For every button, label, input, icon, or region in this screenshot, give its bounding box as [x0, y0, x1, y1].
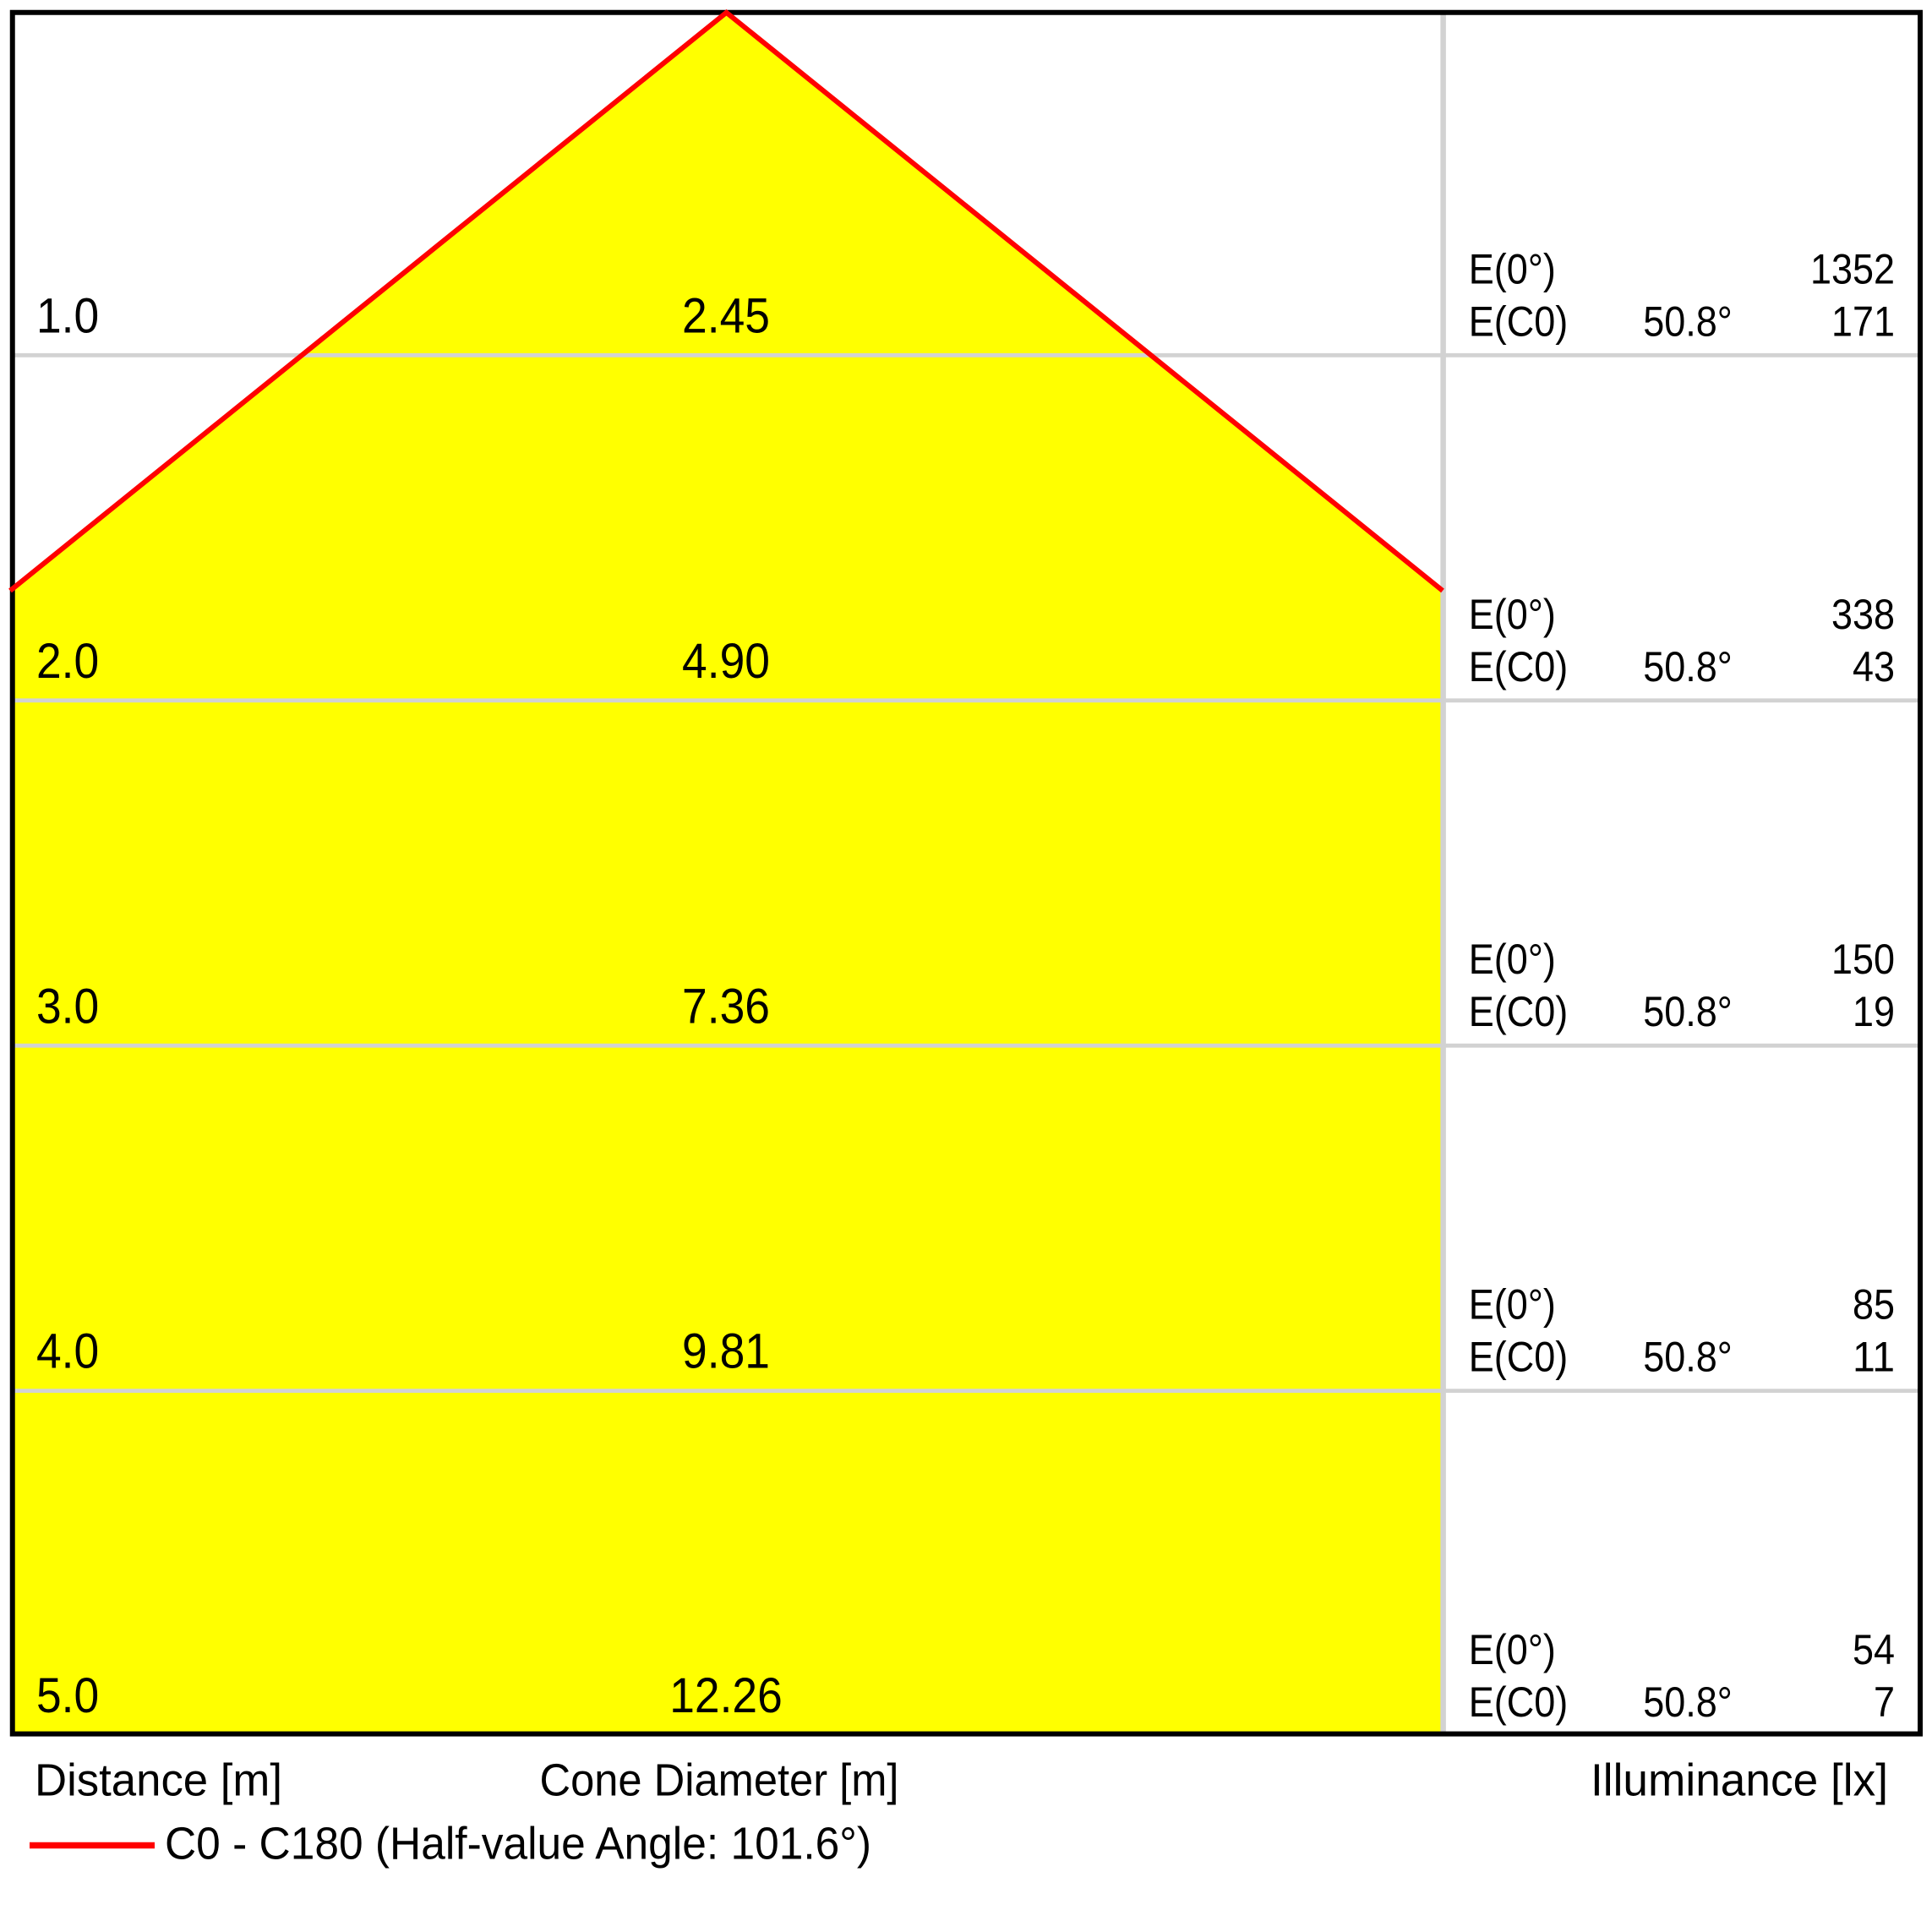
svg-text:19: 19 — [1853, 988, 1895, 1035]
svg-text:12.26: 12.26 — [669, 1668, 783, 1723]
svg-text:E(C0): E(C0) — [1469, 1334, 1569, 1381]
svg-text:50.8°: 50.8° — [1643, 988, 1733, 1035]
svg-text:E(C0): E(C0) — [1469, 1678, 1569, 1726]
svg-text:43: 43 — [1853, 643, 1895, 690]
svg-text:E(0°): E(0°) — [1469, 245, 1556, 292]
svg-text:150: 150 — [1831, 936, 1895, 983]
svg-text:54: 54 — [1853, 1626, 1895, 1673]
svg-text:50.8°: 50.8° — [1643, 643, 1733, 690]
svg-text:171: 171 — [1831, 297, 1895, 345]
svg-text:Cone Diameter [m]: Cone Diameter [m] — [540, 1755, 899, 1806]
svg-text:Distance [m]: Distance [m] — [35, 1755, 282, 1806]
svg-text:338: 338 — [1831, 591, 1895, 638]
svg-text:E(0°): E(0°) — [1469, 591, 1556, 638]
svg-text:7: 7 — [1874, 1678, 1895, 1726]
svg-text:3.0: 3.0 — [36, 979, 99, 1034]
svg-text:5.0: 5.0 — [36, 1668, 99, 1723]
svg-text:85: 85 — [1853, 1281, 1895, 1329]
svg-text:50.8°: 50.8° — [1643, 1334, 1733, 1381]
svg-text:E(C0): E(C0) — [1469, 297, 1569, 345]
svg-text:2.45: 2.45 — [682, 288, 770, 343]
svg-text:E(C0): E(C0) — [1469, 643, 1569, 690]
svg-text:1.0: 1.0 — [36, 288, 99, 343]
svg-text:C0 - C180 (Half-value Angle: 1: C0 - C180 (Half-value Angle: 101.6°) — [165, 1818, 871, 1869]
svg-text:4.0: 4.0 — [36, 1324, 99, 1379]
svg-text:11: 11 — [1853, 1334, 1895, 1381]
svg-text:50.8°: 50.8° — [1643, 1678, 1733, 1726]
svg-text:4.90: 4.90 — [682, 634, 770, 689]
svg-text:50.8°: 50.8° — [1643, 297, 1733, 345]
svg-text:E(0°): E(0°) — [1469, 1626, 1556, 1673]
svg-text:1352: 1352 — [1810, 245, 1895, 292]
svg-text:9.81: 9.81 — [682, 1324, 770, 1379]
svg-text:E(C0): E(C0) — [1469, 988, 1569, 1035]
svg-text:E(0°): E(0°) — [1469, 936, 1556, 983]
svg-text:2.0: 2.0 — [36, 634, 99, 689]
svg-text:7.36: 7.36 — [682, 979, 770, 1034]
svg-text:E(0°): E(0°) — [1469, 1281, 1556, 1329]
svg-text:Illuminance [lx]: Illuminance [lx] — [1591, 1755, 1888, 1806]
